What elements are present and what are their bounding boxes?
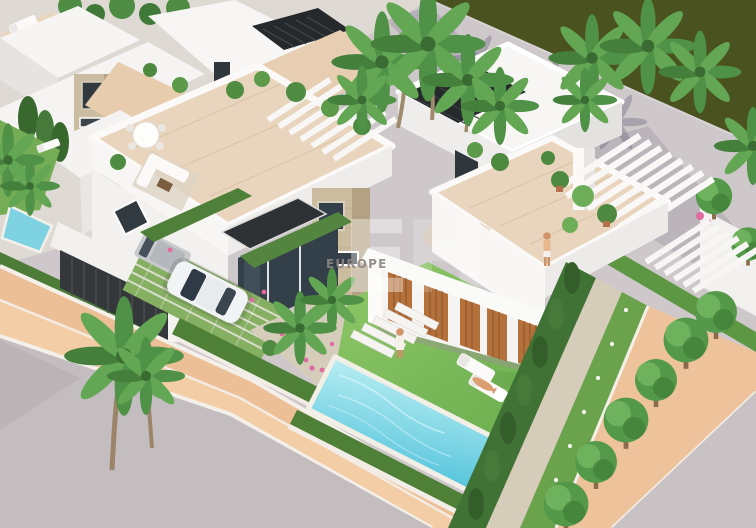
flowers xyxy=(320,368,325,373)
watermark-brand-text: EUROPE xyxy=(326,257,388,271)
potted-plant xyxy=(491,153,509,171)
chair xyxy=(156,142,164,150)
potted-plant xyxy=(541,151,555,165)
hedge-flowers xyxy=(610,342,614,346)
person-head xyxy=(543,232,551,240)
palm-tree xyxy=(461,67,539,145)
hedge-flowers xyxy=(568,444,572,448)
chair xyxy=(158,124,166,132)
cypress xyxy=(548,298,564,330)
palm-tree xyxy=(328,66,397,135)
person-leg xyxy=(544,257,547,266)
render-canvas: E H EUROPE xyxy=(0,0,756,528)
potted-plant xyxy=(226,81,244,99)
chair xyxy=(128,142,136,150)
flowers xyxy=(330,342,334,346)
watermark: E H EUROPE xyxy=(326,199,488,316)
person-body xyxy=(544,240,551,252)
palm-tree xyxy=(659,31,742,114)
plant xyxy=(143,63,157,77)
cypress xyxy=(516,374,532,406)
hedge-flowers xyxy=(554,478,558,482)
flowers xyxy=(304,358,309,363)
chair xyxy=(126,124,134,132)
cypress xyxy=(532,336,548,368)
person-shorts xyxy=(544,251,551,257)
palm-tree xyxy=(107,337,185,415)
person-leg xyxy=(401,350,404,358)
cypress xyxy=(500,412,516,444)
flowers xyxy=(168,248,173,253)
potted-plant xyxy=(562,217,578,233)
watermark-logo-letter: H xyxy=(404,199,488,316)
person-head xyxy=(396,328,404,336)
palm-tree xyxy=(553,68,617,132)
flowers xyxy=(250,298,255,303)
person-dress xyxy=(396,336,404,350)
villa-render: E H EUROPE xyxy=(0,0,756,528)
person-leg xyxy=(548,257,551,266)
potted-plant xyxy=(110,154,126,170)
hedge-flowers xyxy=(596,376,600,380)
hedge-flowers xyxy=(582,410,586,414)
wood-louver-panel xyxy=(487,308,507,362)
bougainvillea xyxy=(696,212,704,220)
potted-plant xyxy=(467,142,483,158)
hedge-flowers xyxy=(624,308,628,312)
flowers xyxy=(262,290,267,295)
plant xyxy=(172,77,188,93)
potted-plant xyxy=(572,185,594,207)
flowers xyxy=(309,365,314,370)
plant-pot xyxy=(556,186,563,192)
round-dining-table xyxy=(133,122,159,148)
person-leg xyxy=(397,350,400,358)
plant-pot xyxy=(603,221,610,227)
cypress xyxy=(484,450,500,482)
potted-plant xyxy=(286,82,306,102)
palm-tree xyxy=(0,156,60,216)
cypress xyxy=(468,488,484,520)
potted-plant xyxy=(254,71,270,87)
cypress xyxy=(564,262,580,294)
